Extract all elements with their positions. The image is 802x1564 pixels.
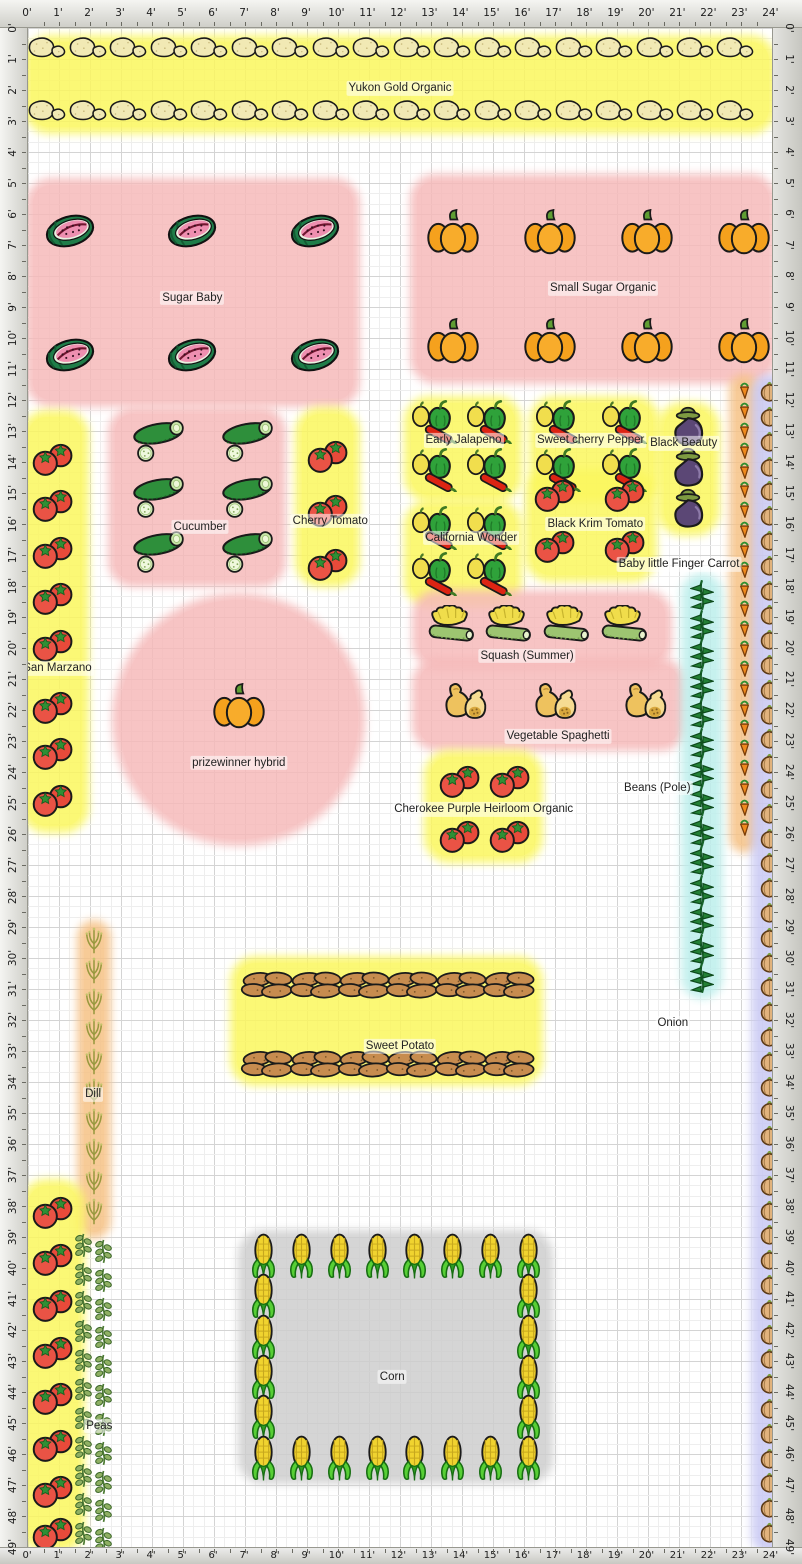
tomato-icon[interactable] — [304, 436, 352, 476]
ruler-tick — [431, 22, 432, 26]
pea-icon[interactable] — [95, 1238, 112, 1264]
potato-icon[interactable] — [26, 98, 68, 123]
potato-icon[interactable] — [512, 35, 554, 60]
corn-icon[interactable] — [288, 1434, 315, 1484]
ruler-tick — [22, 943, 26, 944]
ruler-label: 30' — [783, 950, 795, 966]
tomato-icon[interactable] — [436, 761, 484, 801]
corn-icon[interactable] — [515, 1434, 542, 1484]
ruler-tick — [774, 400, 778, 401]
ruler-tick — [478, 1549, 479, 1553]
ruler-tick — [22, 59, 26, 60]
cucumber-icon[interactable] — [220, 419, 280, 464]
carrot-icon[interactable] — [737, 580, 752, 599]
potato-icon[interactable] — [714, 98, 756, 123]
tomato-icon[interactable] — [601, 475, 649, 515]
tomato-icon[interactable] — [29, 780, 77, 820]
tomato-icon[interactable] — [29, 532, 77, 572]
cucumber-icon[interactable] — [220, 530, 280, 575]
ruler-tick — [774, 958, 778, 959]
ruler-tick — [774, 245, 778, 246]
carrot-icon[interactable] — [737, 679, 752, 698]
ruler-tick — [22, 850, 26, 851]
watermelon-icon[interactable] — [42, 208, 98, 254]
bean-icon[interactable] — [690, 934, 714, 964]
potato-icon[interactable] — [188, 35, 230, 60]
squash-icon[interactable] — [539, 605, 597, 645]
pea-icon[interactable] — [75, 1376, 92, 1402]
bean-icon[interactable] — [690, 728, 714, 758]
ruler-tick — [617, 22, 618, 26]
potato-icon[interactable] — [229, 98, 271, 123]
bean-icon[interactable] — [690, 757, 714, 787]
eggplant-icon[interactable] — [668, 486, 708, 530]
pea-icon[interactable] — [95, 1353, 112, 1379]
ruler-tick — [774, 881, 778, 882]
pea-icon[interactable] — [95, 1469, 112, 1495]
tomato-icon[interactable] — [29, 687, 77, 727]
pea-icon[interactable] — [75, 1462, 92, 1488]
carrot-icon[interactable] — [737, 718, 752, 737]
watermelon-icon[interactable] — [42, 332, 98, 378]
cucumber-icon[interactable] — [131, 475, 191, 520]
ruler-label: 5' — [177, 7, 187, 19]
ruler-label: 12' — [390, 7, 406, 19]
potato-icon[interactable] — [674, 35, 716, 60]
ruler-tick — [774, 261, 778, 262]
ruler-label: 27' — [7, 857, 19, 873]
pea-icon[interactable] — [75, 1491, 92, 1517]
tomato-icon[interactable] — [29, 1192, 77, 1232]
potato-icon[interactable] — [310, 35, 352, 60]
ruler-tick — [22, 292, 26, 293]
ruler-tick — [22, 230, 26, 231]
ruler-tick — [774, 1315, 778, 1316]
ruler-tick — [710, 1549, 711, 1553]
potato-icon[interactable] — [229, 35, 271, 60]
potato-icon[interactable] — [350, 98, 392, 123]
dill-icon[interactable] — [84, 1135, 104, 1165]
tomato-icon[interactable] — [29, 1378, 77, 1418]
ruler-tick — [540, 22, 541, 26]
bean-icon[interactable] — [690, 875, 714, 905]
cucumber-icon[interactable] — [131, 419, 191, 464]
pea-icon[interactable] — [75, 1232, 92, 1258]
eggplant-icon[interactable] — [668, 445, 708, 489]
ruler-tick — [214, 22, 215, 26]
ruler-tick — [509, 1549, 510, 1553]
ruler-label: 23' — [732, 1550, 747, 1561]
ruler-tick — [774, 679, 778, 680]
tomato-icon[interactable] — [29, 625, 77, 665]
ruler-tick — [774, 1439, 778, 1440]
ruler-label: 2' — [84, 7, 94, 19]
ruler-label: 20' — [639, 1550, 654, 1561]
ruler-label: 21' — [7, 671, 19, 687]
ruler-label: 6' — [7, 209, 19, 219]
ruler-tick — [22, 1284, 26, 1285]
carrot-icon[interactable] — [737, 639, 752, 658]
tomato-icon[interactable] — [29, 1285, 77, 1325]
sweetpotato-icon[interactable] — [482, 1048, 538, 1078]
potato-icon[interactable] — [67, 98, 109, 123]
potato-icon[interactable] — [472, 35, 514, 60]
ruler-label: 26' — [783, 826, 795, 842]
ruler-label: 9' — [783, 302, 795, 312]
ruler-label: 6' — [783, 209, 795, 219]
potato-icon[interactable] — [391, 98, 433, 123]
pumpkin-icon[interactable] — [213, 683, 265, 730]
cucumber-icon[interactable] — [220, 475, 280, 520]
squash-icon[interactable] — [597, 605, 655, 645]
bean-icon[interactable] — [690, 669, 714, 699]
ruler-label: 44' — [7, 1384, 19, 1400]
ruler-tick — [22, 524, 26, 525]
ruler-tick — [168, 22, 169, 26]
ruler-tick — [774, 230, 778, 231]
bed-label-small-sugar: Small Sugar Organic — [548, 281, 658, 295]
pumpkin-icon[interactable] — [524, 209, 576, 256]
tomato-icon[interactable] — [29, 1471, 77, 1511]
ruler-tick — [22, 741, 26, 742]
ruler-tick — [774, 75, 778, 76]
dill-icon[interactable] — [84, 1015, 104, 1045]
carrot-icon[interactable] — [737, 659, 752, 678]
carrot-icon[interactable] — [737, 758, 752, 777]
ruler-tick — [774, 1253, 778, 1254]
ruler-tick — [774, 416, 778, 417]
carrot-icon[interactable] — [737, 480, 752, 499]
ruler-tick — [774, 1160, 778, 1161]
ruler-label: 9' — [301, 7, 311, 19]
ruler-label: 37' — [783, 1167, 795, 1183]
ruler-tick — [22, 121, 26, 122]
ruler-label: 4' — [7, 147, 19, 157]
carrot-icon[interactable] — [737, 520, 752, 539]
potato-icon[interactable] — [634, 35, 676, 60]
bean-icon[interactable] — [690, 816, 714, 846]
carrot-icon[interactable] — [737, 401, 752, 420]
ruler-label: 16' — [7, 516, 19, 532]
watermelon-icon[interactable] — [164, 332, 220, 378]
bed-label-corn: Corn — [378, 1369, 407, 1383]
ruler-tick — [774, 1392, 778, 1393]
plot-area[interactable]: Yukon Gold OrganicSugar BabySmall Sugar … — [28, 28, 772, 1547]
ruler-label: 4' — [146, 7, 156, 19]
ruler-label: 4' — [783, 147, 795, 157]
ruler-label: 0' — [783, 23, 795, 33]
bean-icon[interactable] — [690, 786, 714, 816]
bean-icon[interactable] — [690, 639, 714, 669]
corn-icon[interactable] — [326, 1434, 353, 1484]
tomato-icon[interactable] — [29, 1332, 77, 1372]
carrot-icon[interactable] — [737, 421, 752, 440]
ruler-tick — [774, 1067, 778, 1068]
ruler-tick — [633, 1549, 634, 1553]
ruler-label: 10' — [7, 330, 19, 346]
tomato-icon[interactable] — [531, 475, 579, 515]
ruler-tick — [22, 974, 26, 975]
ruler-tick — [617, 1549, 618, 1553]
bean-icon[interactable] — [690, 845, 714, 875]
dill-icon[interactable] — [84, 1045, 104, 1075]
ruler-tick — [292, 22, 293, 26]
potato-icon[interactable] — [350, 35, 392, 60]
pea-icon[interactable] — [95, 1497, 112, 1523]
ruler-tick — [338, 22, 339, 26]
corn-icon[interactable] — [439, 1232, 466, 1282]
pepper-icon[interactable] — [465, 548, 517, 596]
pea-icon[interactable] — [95, 1324, 112, 1350]
tomato-icon[interactable] — [486, 761, 534, 801]
squash-icon[interactable] — [481, 605, 539, 645]
ruler-tick — [90, 22, 91, 26]
potato-icon[interactable] — [431, 98, 473, 123]
ruler-label: 28' — [7, 888, 19, 904]
ruler-tick — [22, 137, 26, 138]
corn-icon[interactable] — [250, 1434, 277, 1484]
potato-icon[interactable] — [553, 35, 595, 60]
spaghetti-icon[interactable] — [436, 681, 488, 724]
spaghetti-icon[interactable] — [526, 681, 578, 724]
carrot-icon[interactable] — [737, 540, 752, 559]
ruler-tick — [121, 22, 122, 26]
ruler-tick — [774, 1020, 778, 1021]
tomato-icon[interactable] — [29, 578, 77, 618]
tomato-icon[interactable] — [29, 1239, 77, 1279]
potato-icon[interactable] — [67, 35, 109, 60]
potato-icon[interactable] — [593, 35, 635, 60]
corn-icon[interactable] — [439, 1434, 466, 1484]
ruler-tick — [59, 1549, 60, 1553]
ruler-tick — [774, 1237, 778, 1238]
pumpkin-icon[interactable] — [621, 209, 673, 256]
ruler-tick — [774, 524, 778, 525]
corn-icon[interactable] — [326, 1232, 353, 1282]
ruler-label: 23' — [731, 7, 747, 19]
carrot-icon[interactable] — [737, 818, 752, 837]
ruler-tick — [22, 540, 26, 541]
corn-icon[interactable] — [401, 1232, 428, 1282]
pumpkin-icon[interactable] — [427, 318, 479, 365]
ruler-tick — [22, 710, 26, 711]
pumpkin-icon[interactable] — [718, 318, 770, 365]
ruler-label: 28' — [783, 888, 795, 904]
tomato-icon[interactable] — [531, 526, 579, 566]
potato-icon[interactable] — [593, 98, 635, 123]
spaghetti-icon[interactable] — [616, 681, 668, 724]
bean-icon[interactable] — [690, 698, 714, 728]
tomato-icon[interactable] — [29, 485, 77, 525]
ruler-label: 8' — [7, 271, 19, 281]
potato-icon[interactable] — [472, 98, 514, 123]
ruler-tick — [774, 1299, 778, 1300]
ruler-label: 13' — [783, 423, 795, 439]
carrot-icon[interactable] — [737, 738, 752, 757]
tomato-icon[interactable] — [29, 733, 77, 773]
ruler-label: 42' — [783, 1322, 795, 1338]
ruler-tick — [493, 22, 494, 26]
carrot-icon[interactable] — [737, 619, 752, 638]
ruler-label: 25' — [7, 795, 19, 811]
corn-icon[interactable] — [477, 1232, 504, 1282]
ruler-tick — [757, 1549, 758, 1553]
potato-icon[interactable] — [512, 98, 554, 123]
ruler-label: 18' — [783, 578, 795, 594]
ruler-tick — [774, 788, 778, 789]
pea-icon[interactable] — [95, 1440, 112, 1466]
pea-icon[interactable] — [75, 1347, 92, 1373]
ruler-tick — [741, 22, 742, 26]
ruler-label: 16' — [783, 516, 795, 532]
ruler-tick — [22, 679, 26, 680]
ruler-tick — [726, 1549, 727, 1553]
squash-icon[interactable] — [424, 605, 482, 645]
bean-icon[interactable] — [690, 580, 714, 610]
pea-icon[interactable] — [75, 1261, 92, 1287]
potato-icon[interactable] — [269, 35, 311, 60]
potato-icon[interactable] — [634, 98, 676, 123]
pumpkin-icon[interactable] — [621, 318, 673, 365]
ruler-tick — [22, 1408, 26, 1409]
potato-icon[interactable] — [26, 35, 68, 60]
bean-icon[interactable] — [690, 904, 714, 934]
bed-label-california-wonder: California Wonder — [423, 531, 519, 545]
carrot-icon[interactable] — [737, 798, 752, 817]
potato-icon[interactable] — [553, 98, 595, 123]
ruler-tick — [22, 1067, 26, 1068]
dill-icon[interactable] — [84, 1105, 104, 1135]
pea-icon[interactable] — [95, 1267, 112, 1293]
pea-icon[interactable] — [75, 1434, 92, 1460]
ruler-tick — [276, 1549, 277, 1553]
carrot-icon[interactable] — [737, 699, 752, 718]
carrot-icon[interactable] — [737, 381, 752, 400]
ruler-tick — [22, 106, 26, 107]
potato-icon[interactable] — [148, 98, 190, 123]
dill-icon[interactable] — [84, 1165, 104, 1195]
ruler-label: 41' — [7, 1291, 19, 1307]
ruler-tick — [121, 1549, 122, 1553]
corn-icon[interactable] — [364, 1434, 391, 1484]
bean-icon[interactable] — [690, 610, 714, 640]
ruler-tick — [22, 1144, 26, 1145]
tomato-icon[interactable] — [29, 439, 77, 479]
potato-icon[interactable] — [310, 98, 352, 123]
ruler-tick — [22, 1098, 26, 1099]
carrot-icon[interactable] — [737, 500, 752, 519]
pea-icon[interactable] — [75, 1318, 92, 1344]
corn-icon[interactable] — [364, 1232, 391, 1282]
ruler-label: 40' — [7, 1260, 19, 1276]
pea-icon[interactable] — [95, 1296, 112, 1322]
ruler-label: 0' — [22, 7, 32, 19]
pepper-icon[interactable] — [410, 548, 462, 596]
ruler-tick — [22, 1377, 26, 1378]
ruler-tick — [22, 245, 26, 246]
potato-icon[interactable] — [269, 98, 311, 123]
ruler-label: 49' — [7, 1539, 19, 1555]
ruler-tick — [774, 509, 778, 510]
corn-icon[interactable] — [477, 1434, 504, 1484]
pepper-icon[interactable] — [465, 444, 517, 492]
corn-icon[interactable] — [288, 1232, 315, 1282]
pea-icon[interactable] — [95, 1382, 112, 1408]
ruler-label: 39' — [7, 1229, 19, 1245]
ruler-label: 11' — [783, 361, 795, 377]
watermelon-icon[interactable] — [287, 208, 343, 254]
ruler-tick — [571, 1549, 572, 1553]
ruler-tick — [774, 1346, 778, 1347]
potato-icon[interactable] — [107, 35, 149, 60]
ruler-tick — [22, 214, 26, 215]
tomato-icon[interactable] — [436, 816, 484, 856]
potato-icon[interactable] — [148, 35, 190, 60]
ruler-tick — [307, 1549, 308, 1553]
ruler-label: 46' — [783, 1446, 795, 1462]
ruler-label: 23' — [7, 733, 19, 749]
dill-icon[interactable] — [84, 924, 104, 954]
ruler-tick — [22, 199, 26, 200]
dill-icon[interactable] — [84, 985, 104, 1015]
carrot-icon[interactable] — [737, 461, 752, 480]
tomato-icon[interactable] — [29, 1425, 77, 1465]
dill-icon[interactable] — [84, 1195, 104, 1225]
potato-icon[interactable] — [431, 35, 473, 60]
ruler-label: 10' — [783, 330, 795, 346]
ruler-tick — [774, 1501, 778, 1502]
cucumber-icon[interactable] — [131, 530, 191, 575]
watermelon-icon[interactable] — [287, 332, 343, 378]
dill-icon[interactable] — [84, 954, 104, 984]
ruler-tick — [774, 834, 778, 835]
ruler-tick — [292, 1549, 293, 1553]
ruler-tick — [22, 989, 26, 990]
pea-icon[interactable] — [75, 1520, 92, 1546]
tomato-icon[interactable] — [304, 544, 352, 584]
tomato-icon[interactable] — [486, 816, 534, 856]
pea-icon[interactable] — [75, 1289, 92, 1315]
potato-icon[interactable] — [674, 98, 716, 123]
ruler-tick — [648, 22, 649, 26]
ruler-tick — [774, 912, 778, 913]
pumpkin-icon[interactable] — [524, 318, 576, 365]
carrot-icon[interactable] — [737, 599, 752, 618]
ruler-tick — [774, 1377, 778, 1378]
ruler-tick — [22, 1315, 26, 1316]
carrot-icon[interactable] — [737, 778, 752, 797]
ruler-tick — [400, 1549, 401, 1553]
ruler-tick — [774, 431, 778, 432]
watermelon-icon[interactable] — [164, 208, 220, 254]
potato-icon[interactable] — [188, 98, 230, 123]
carrot-icon[interactable] — [737, 441, 752, 460]
ruler-tick — [774, 896, 778, 897]
potato-icon[interactable] — [107, 98, 149, 123]
sweetpotato-icon[interactable] — [482, 969, 538, 999]
ruler-tick — [22, 648, 26, 649]
corn-icon[interactable] — [401, 1434, 428, 1484]
ruler-label: 1' — [7, 54, 19, 64]
potato-icon[interactable] — [714, 35, 756, 60]
ruler-tick — [354, 1549, 355, 1553]
pumpkin-icon[interactable] — [718, 209, 770, 256]
pumpkin-icon[interactable] — [427, 209, 479, 256]
bean-icon[interactable] — [690, 963, 714, 993]
potato-icon[interactable] — [391, 35, 433, 60]
pepper-icon[interactable] — [410, 444, 462, 492]
ruler-label: 8' — [270, 7, 280, 19]
